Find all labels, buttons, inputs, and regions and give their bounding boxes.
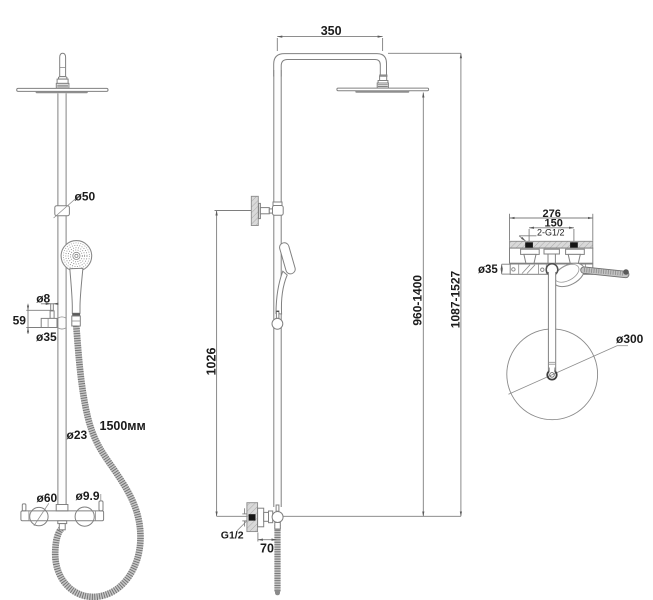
svg-text:59: 59 (13, 314, 27, 328)
svg-text:ø300: ø300 (616, 332, 644, 346)
svg-text:2-G1/2: 2-G1/2 (537, 227, 565, 237)
svg-text:ø23: ø23 (67, 428, 88, 442)
svg-text:ø50: ø50 (75, 190, 96, 204)
svg-text:G1/2: G1/2 (221, 530, 244, 542)
svg-text:350: 350 (321, 24, 342, 38)
svg-text:ø9.9: ø9.9 (76, 489, 100, 503)
svg-text:ø35: ø35 (478, 264, 498, 276)
svg-text:ø35: ø35 (36, 330, 57, 344)
svg-text:70: 70 (260, 541, 274, 555)
svg-text:960-1400: 960-1400 (410, 275, 424, 326)
svg-text:1500мм: 1500мм (100, 419, 146, 433)
svg-text:1087-1527: 1087-1527 (448, 270, 462, 328)
svg-text:ø60: ø60 (37, 491, 58, 505)
